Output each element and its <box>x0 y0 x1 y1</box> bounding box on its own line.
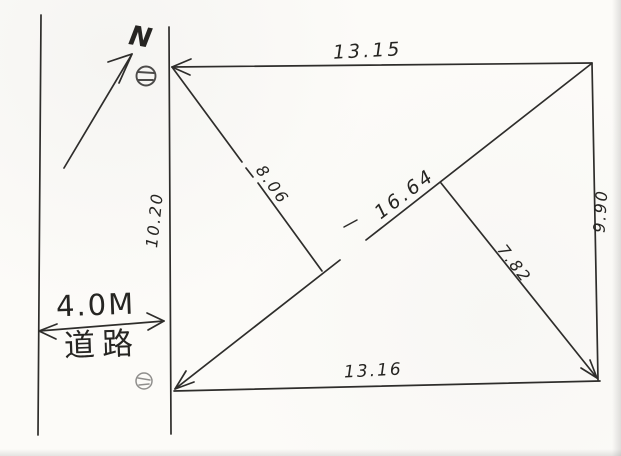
diagonal-line <box>175 64 591 389</box>
scan-edge-shadow-bottom <box>0 449 621 456</box>
survey-sketch-drawing <box>0 0 621 456</box>
road-right-edge-line <box>169 27 171 434</box>
bottom-length-label: 13.16 <box>344 361 403 381</box>
road-name-label: 道路 <box>63 329 140 363</box>
north-label: N <box>127 22 154 53</box>
north-arrow-shaft <box>64 54 132 168</box>
road-left-edge-line <box>38 15 41 435</box>
parcel-top-edge-line <box>172 63 592 67</box>
survey-sketch-page: 13.15 13.16 10.20 9.90 16.64 8.06 7.82 4… <box>0 0 621 456</box>
upper-offset-line <box>172 67 322 271</box>
scan-edge-shadow-right <box>612 0 621 456</box>
boundary-marker-bottom-icon <box>136 373 152 389</box>
road-width-left-arrowhead-icon <box>39 324 57 339</box>
north-arrowhead-icon <box>108 54 132 83</box>
right-length-label: 9.90 <box>591 183 611 240</box>
top-length-label: 13.15 <box>333 40 403 63</box>
north-arrow-icon <box>64 54 132 168</box>
parcel-bottom-edge-line <box>174 381 600 391</box>
diagonal-pen-dash <box>344 220 357 227</box>
road-width-label: 4.0M <box>56 290 136 322</box>
boundary-marker-top-icon <box>137 67 156 86</box>
